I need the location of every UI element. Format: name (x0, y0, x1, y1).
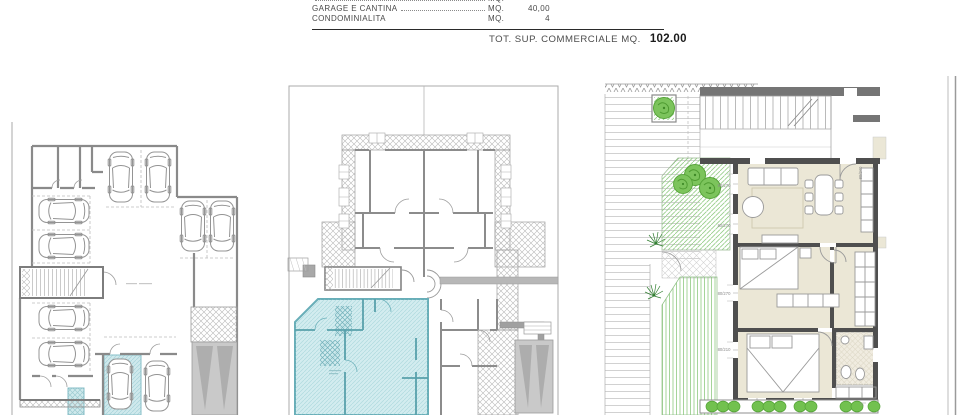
row-label: GARAGE E CANTINA (312, 4, 398, 13)
table-row-garage: GARAGE E CANTINA MQ. 40,00 (312, 3, 550, 13)
car-icon (39, 233, 89, 259)
area-table: MQ. GARAGE E CANTINA MQ. 40,00 CONDOMINI… (312, 0, 664, 30)
row-unit: MQ. (488, 14, 516, 23)
hedge-row (700, 400, 880, 413)
svg-text:80/270: 80/270 (718, 183, 731, 188)
car-icon (39, 341, 89, 367)
row-unit: MQ. (488, 4, 516, 13)
bush-icon (706, 401, 718, 412)
total-value: 102.00 (650, 33, 687, 45)
bush-icon (763, 401, 775, 412)
car-icon (145, 152, 171, 202)
table-rule (312, 29, 664, 30)
total-line: TOT. SUP. COMMERCIALE MQ. 102.00 (489, 33, 687, 45)
tree-icon (674, 175, 693, 194)
car-icon (144, 361, 170, 411)
leader-spacer (389, 20, 485, 21)
svg-text:80/270: 80/270 (718, 223, 731, 228)
bush-icon (868, 401, 880, 412)
bush-icon (840, 401, 852, 412)
bush-icon (794, 401, 806, 412)
planter (652, 95, 676, 122)
dotted-leader (401, 9, 485, 11)
row-value: 4 (516, 14, 550, 23)
car-icon (107, 359, 133, 409)
bush-icon (851, 401, 863, 412)
svg-text:80/270: 80/270 (718, 291, 731, 296)
ramp (191, 307, 237, 415)
bush-icon (805, 401, 817, 412)
table-row-condominio: CONDOMINIALITA MQ. 4 (312, 13, 550, 23)
tree-icon (700, 178, 721, 199)
first-floor-plan (288, 86, 558, 415)
car-icon (39, 198, 89, 224)
paved-court (662, 250, 716, 278)
micro-label (126, 283, 152, 284)
bush-icon (728, 401, 740, 412)
row-unit: MQ. (488, 0, 516, 3)
row-value: 40,00 (516, 4, 550, 13)
total-label: TOT. SUP. COMMERCIALE MQ. (489, 34, 641, 45)
party-wall-strip (440, 277, 558, 284)
car-icon (209, 201, 235, 251)
bush-icon (752, 401, 764, 412)
car-icon (180, 201, 206, 251)
tree-icon (654, 98, 675, 119)
garden-terrace (662, 158, 730, 250)
row-label: CONDOMINIALITA (312, 14, 386, 23)
dotted-leader (315, 0, 485, 1)
interior-walls (355, 150, 495, 277)
highlighted-unit (295, 299, 428, 415)
svg-text:80/210: 80/210 (718, 347, 731, 352)
site-plan-drawing: 80/270 80/270 80/270 80/210 80/240 (0, 0, 960, 415)
car-icon (39, 305, 89, 331)
floor-plan-sheet: MQ. GARAGE E CANTINA MQ. 40,00 CONDOMINI… (0, 0, 960, 415)
garage-plan (20, 146, 237, 415)
staircase (20, 267, 103, 298)
ground-floor-plan: 80/270 80/270 80/270 80/210 80/240 (605, 84, 886, 415)
ramp (515, 340, 553, 413)
car-icon (108, 152, 134, 202)
svg-text:80/240: 80/240 (858, 166, 863, 179)
bush-icon (774, 401, 786, 412)
bush-icon (717, 401, 729, 412)
grate (524, 322, 551, 334)
bottom-wall-band (20, 400, 100, 407)
